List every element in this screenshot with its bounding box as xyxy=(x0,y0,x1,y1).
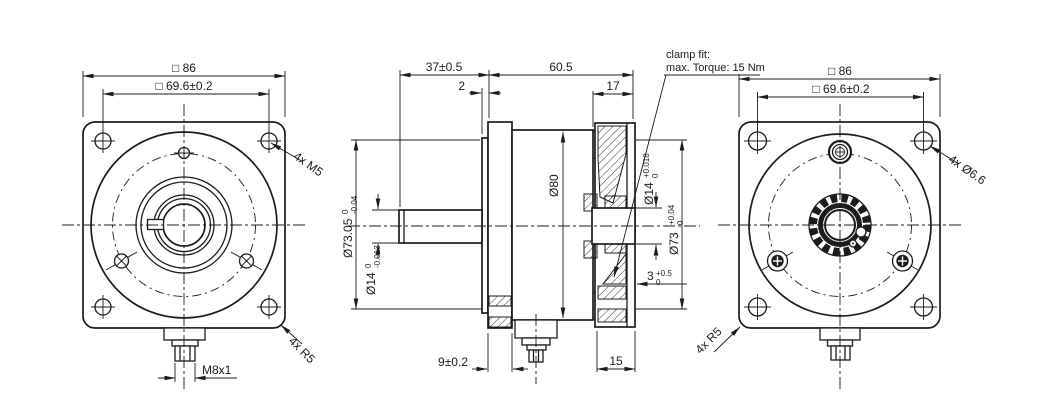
rear-view: □ 86 □ 69.6±0.2 4x Ø6.6 4x R5 xyxy=(693,64,989,389)
svg-text:+0.018: +0.018 xyxy=(642,153,651,178)
svg-text:Ø73.05: Ø73.05 xyxy=(341,218,355,258)
svg-text:0: 0 xyxy=(364,263,373,268)
svg-text:0: 0 xyxy=(656,278,661,287)
svg-text:Ø14: Ø14 xyxy=(642,182,656,205)
svg-text:-0.04: -0.04 xyxy=(350,195,359,214)
encoder-technical-drawing: □ 86 □ 69.6±0.2 4x M5 4x R5 M8x1 xyxy=(0,0,1050,411)
front-label-connector-thread: M8x1 xyxy=(202,363,232,377)
svg-text:clamp fit:: clamp fit: xyxy=(666,49,710,61)
side-view: 37±0.5 60.5 2 17 9±0.2 15 Ø80 xyxy=(341,49,765,384)
front-connector xyxy=(164,328,205,361)
side-dim-shaft-dia: Ø14 0 -0.013 xyxy=(364,245,382,295)
svg-text:Ø73: Ø73 xyxy=(667,232,681,255)
side-dim-bore-dia: Ø14 +0.018 0 xyxy=(642,153,660,205)
front-label-corner-radius: 4x R5 xyxy=(286,334,318,366)
clamp-slot xyxy=(148,220,164,230)
side-dim-front-length: 37±0.5 xyxy=(426,60,463,74)
svg-text:+0.04: +0.04 xyxy=(667,204,676,225)
rear-label-holes: 4x Ø6.6 xyxy=(946,152,989,188)
side-dim-housing-length: 60.5 xyxy=(549,60,573,74)
side-dim-rear-thickness: 15 xyxy=(609,354,623,368)
svg-text:Ø14: Ø14 xyxy=(364,272,378,295)
svg-text:-0.013: -0.013 xyxy=(373,245,382,268)
side-dim-pilot-step: 2 xyxy=(458,79,465,93)
side-dim-rear-width: 17 xyxy=(606,79,620,93)
svg-text:+0.5: +0.5 xyxy=(656,269,672,278)
front-dim-outer: □ 86 xyxy=(172,61,196,75)
rear-dim-outer: □ 86 xyxy=(828,64,852,78)
pilot-disc xyxy=(482,138,488,313)
svg-text:0: 0 xyxy=(341,209,350,214)
svg-text:0: 0 xyxy=(651,173,660,178)
rear-label-corner-radius: 4x R5 xyxy=(693,324,725,356)
front-dim-bolt-circle: □ 69.6±0.2 xyxy=(155,79,213,93)
side-dim-flange-thickness: 9±0.2 xyxy=(438,355,468,369)
shaft xyxy=(399,210,482,243)
side-dim-housing-dia: Ø80 xyxy=(547,174,561,197)
svg-text:3: 3 xyxy=(647,269,654,283)
rear-dim-bolt-circle: □ 69.6±0.2 xyxy=(812,82,870,96)
front-label-screws: 4x M5 xyxy=(291,149,326,179)
svg-text:max. Torque: 15 Nm: max. Torque: 15 Nm xyxy=(666,62,765,74)
front-view: □ 86 □ 69.6±0.2 4x M5 4x R5 M8x1 xyxy=(62,61,326,389)
housing-body xyxy=(512,130,593,320)
svg-text:0: 0 xyxy=(676,220,685,225)
